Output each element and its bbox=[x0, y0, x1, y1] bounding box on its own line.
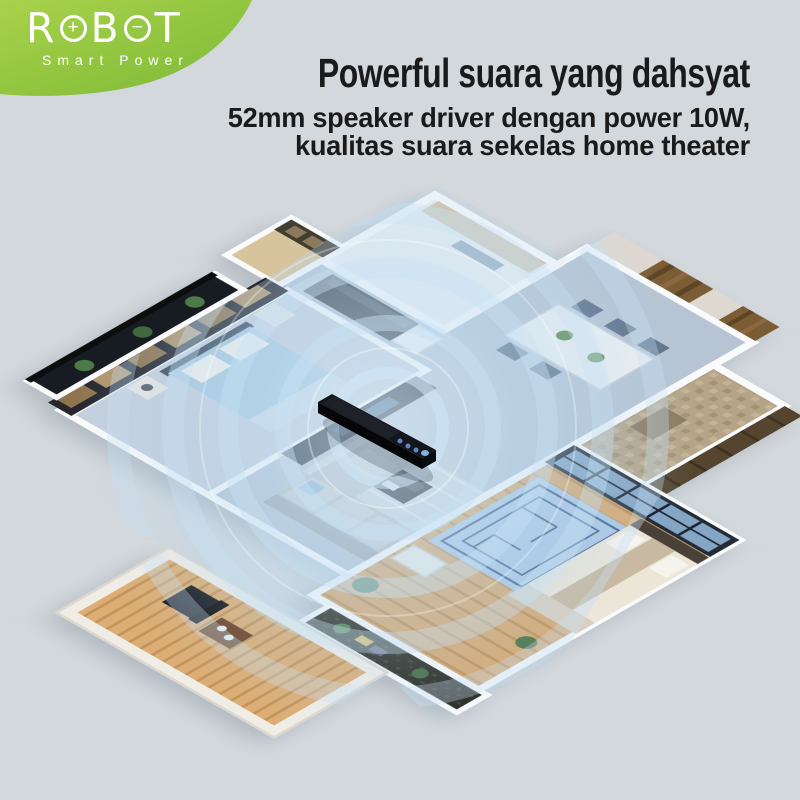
logo-o-plus-icon: + bbox=[60, 15, 87, 42]
logo-letter-t: T bbox=[155, 8, 181, 48]
logo-o-minus-icon: − bbox=[124, 15, 151, 42]
brand-logo: R + B − T bbox=[26, 8, 181, 48]
headline-subtitle-line2: kualitas suara sekelas home theater bbox=[213, 132, 750, 160]
logo-letter-b: B bbox=[91, 8, 120, 48]
ad-canvas: R + B − T Smart Power Powerful suara yan… bbox=[0, 0, 800, 800]
headline-block: Powerful suara yang dahsyat 52mm speaker… bbox=[196, 50, 750, 160]
headline-subtitle-line1: 52mm speaker driver dengan power 10W, bbox=[213, 104, 750, 132]
logo-letter-r: R bbox=[26, 8, 56, 48]
headline-title: Powerful suara yang dahsyat bbox=[318, 50, 750, 97]
brand-tagline: Smart Power bbox=[42, 52, 189, 68]
